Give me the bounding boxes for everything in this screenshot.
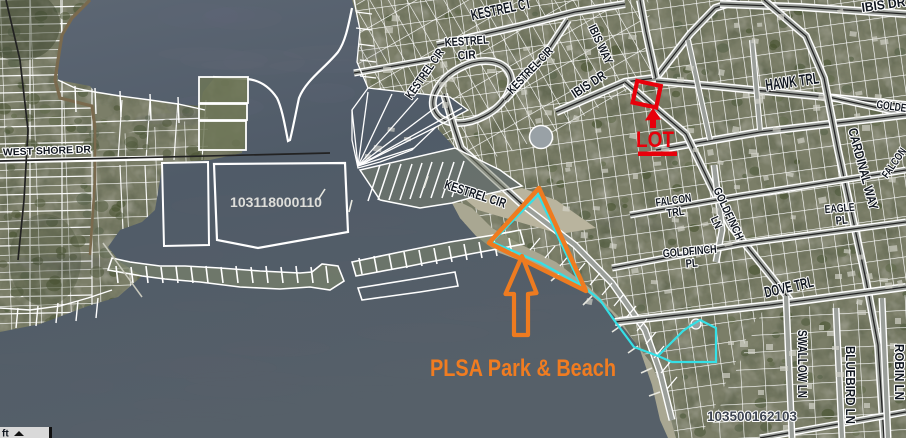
svg-text:103500162103: 103500162103	[707, 408, 797, 424]
svg-text:BLUEBIRD LN: BLUEBIRD LN	[843, 346, 858, 424]
svg-text:103118000110: 103118000110	[230, 194, 322, 210]
svg-text:ROBIN LN: ROBIN LN	[892, 344, 906, 400]
svg-text:TRL: TRL	[666, 206, 685, 220]
svg-text:LOT: LOT	[636, 127, 674, 152]
svg-text:ft: ft	[2, 429, 9, 438]
svg-text:SWALLOW LN: SWALLOW LN	[795, 330, 810, 398]
svg-text:PLSA Park & Beach: PLSA Park & Beach	[430, 355, 616, 382]
svg-text:CIR: CIR	[457, 47, 476, 62]
svg-text:PL: PL	[835, 215, 848, 228]
svg-text:PL: PL	[685, 258, 698, 271]
